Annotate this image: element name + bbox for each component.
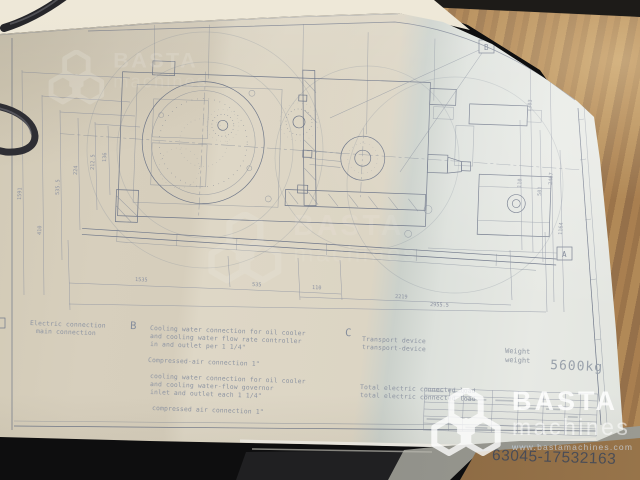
svg-text:212.5: 212.5 <box>90 154 97 170</box>
dimension-lines: 1535 535 110 2219 2955.5 136 212.5 224 5… <box>17 58 565 312</box>
svg-text:1303: 1303 <box>527 99 534 112</box>
svg-text:2955.5: 2955.5 <box>430 302 449 309</box>
swing-arcs <box>87 32 563 293</box>
svg-text:2467: 2467 <box>548 172 555 185</box>
legend-c-letter: C <box>345 327 352 339</box>
legend-a-line2: main connection <box>36 328 96 337</box>
weight-label-en: Weight <box>505 347 531 356</box>
machine-body <box>56 16 584 272</box>
svg-text:224: 224 <box>73 165 79 175</box>
svg-text:136: 136 <box>102 152 108 162</box>
weight-value: 5600kg <box>550 358 604 375</box>
legend-b-letter: B <box>130 320 137 332</box>
svg-text:410: 410 <box>37 225 43 235</box>
svg-text:transport-device: transport-device <box>362 344 426 353</box>
svg-text:1164: 1164 <box>558 222 565 235</box>
svg-text:110: 110 <box>517 178 524 188</box>
svg-text:535.5: 535.5 <box>55 179 62 195</box>
title-block <box>423 388 597 436</box>
svg-text:Compressed-air connection 1": Compressed-air connection 1" <box>148 357 260 368</box>
svg-text:110: 110 <box>312 285 322 291</box>
legend: Electric connection main connection B Co… <box>30 320 603 416</box>
svg-text:2219: 2219 <box>395 294 408 300</box>
svg-text:compressed air connection 1": compressed air connection 1" <box>152 405 264 416</box>
weight-label: weight <box>505 356 531 365</box>
photo-of-technical-drawing: B A 1535 535 110 2219 2955.5 136 212.5 2… <box>0 0 640 480</box>
listing-id-text: 63045-17532163 <box>492 447 617 469</box>
svg-text:535: 535 <box>252 282 262 288</box>
svg-text:501: 501 <box>537 186 544 196</box>
callout-top-label: B <box>484 43 489 52</box>
svg-text:1591: 1591 <box>17 187 23 200</box>
svg-text:1535: 1535 <box>135 277 148 283</box>
